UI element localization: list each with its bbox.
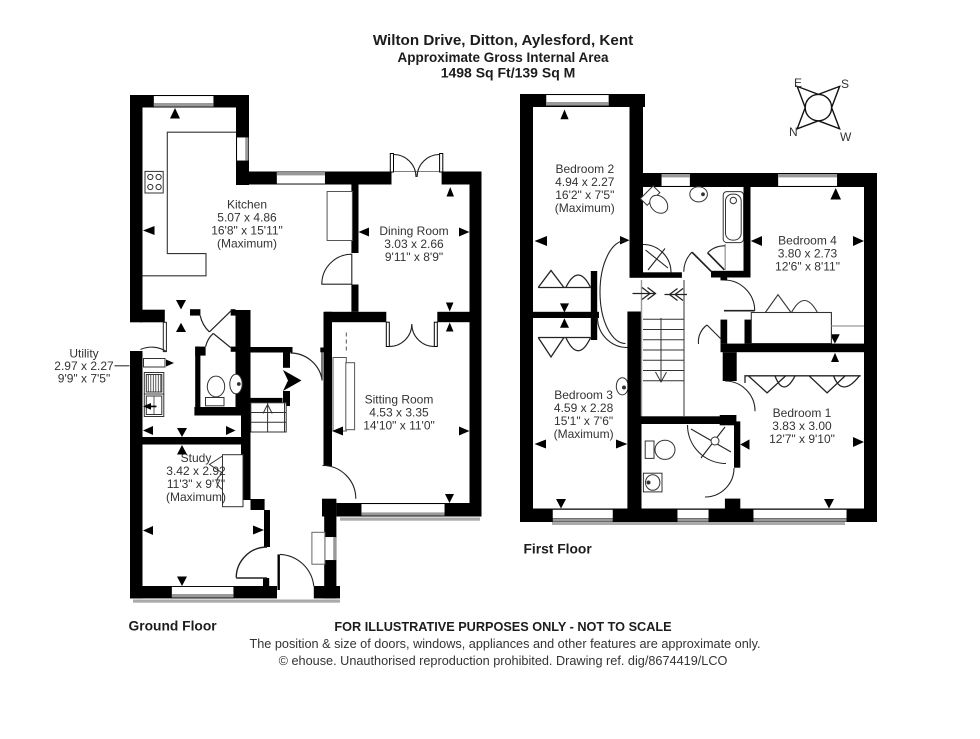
- svg-text:N: N: [789, 125, 798, 139]
- svg-text:12'7" x 9'10": 12'7" x 9'10": [769, 432, 835, 446]
- svg-text:3.83 x 3.00: 3.83 x 3.00: [772, 419, 832, 433]
- svg-text:FOR ILLUSTRATIVE PURPOSES ONLY: FOR ILLUSTRATIVE PURPOSES ONLY - NOT TO …: [334, 620, 671, 634]
- svg-text:Kitchen: Kitchen: [227, 198, 267, 212]
- svg-text:9'9" x 7'5": 9'9" x 7'5": [58, 372, 110, 386]
- svg-text:1498 Sq Ft/139 Sq M: 1498 Sq Ft/139 Sq M: [441, 65, 576, 81]
- svg-text:3.42 x 2.92: 3.42 x 2.92: [166, 464, 226, 478]
- svg-text:(Maximum): (Maximum): [217, 237, 277, 251]
- svg-text:Bedroom 3: Bedroom 3: [554, 388, 613, 402]
- svg-text:Bedroom 4: Bedroom 4: [778, 234, 837, 248]
- svg-text:4.53 x 3.35: 4.53 x 3.35: [369, 406, 429, 420]
- svg-text:11'3" x 9'7": 11'3" x 9'7": [167, 477, 225, 491]
- svg-text:16'8" x 15'11": 16'8" x 15'11": [211, 224, 283, 238]
- svg-text:W: W: [840, 130, 852, 144]
- svg-text:9'11" x 8'9": 9'11" x 8'9": [385, 250, 443, 264]
- svg-text:Dining Room: Dining Room: [379, 224, 448, 238]
- svg-text:E: E: [794, 76, 802, 90]
- svg-text:First Floor: First Floor: [524, 542, 593, 557]
- svg-text:Bedroom 1: Bedroom 1: [773, 406, 832, 420]
- svg-text:3.03 x 2.66: 3.03 x 2.66: [384, 237, 444, 251]
- svg-text:Approximate Gross Internal Are: Approximate Gross Internal Area: [397, 50, 609, 65]
- svg-text:15'1" x 7'6": 15'1" x 7'6": [554, 414, 613, 428]
- svg-text:12'6" x 8'11": 12'6" x 8'11": [775, 260, 840, 274]
- svg-text:(Maximum): (Maximum): [166, 490, 226, 504]
- svg-text:© ehouse. Unauthorised reprodu: © ehouse. Unauthorised reproduction proh…: [279, 654, 728, 668]
- svg-text:3.80 x 2.73: 3.80 x 2.73: [778, 247, 838, 261]
- svg-text:16'2" x 7'5": 16'2" x 7'5": [555, 188, 614, 202]
- svg-text:4.94 x 2.27: 4.94 x 2.27: [555, 175, 615, 189]
- svg-text:(Maximum): (Maximum): [555, 201, 615, 215]
- svg-text:14'10" x 11'0": 14'10" x 11'0": [363, 419, 435, 433]
- svg-text:5.07 x 4.86: 5.07 x 4.86: [217, 211, 277, 225]
- svg-text:4.59 x 2.28: 4.59 x 2.28: [554, 401, 614, 415]
- svg-text:S: S: [841, 77, 849, 91]
- svg-text:Sitting Room: Sitting Room: [365, 393, 434, 407]
- svg-text:Bedroom 2: Bedroom 2: [555, 162, 614, 176]
- svg-text:(Maximum): (Maximum): [554, 427, 614, 441]
- svg-text:Ground Floor: Ground Floor: [129, 619, 218, 634]
- svg-text:Wilton Drive, Ditton, Aylesfor: Wilton Drive, Ditton, Aylesford, Kent: [373, 32, 633, 49]
- svg-text:The position & size of doors,: The position & size of doors, windows, a…: [249, 637, 760, 651]
